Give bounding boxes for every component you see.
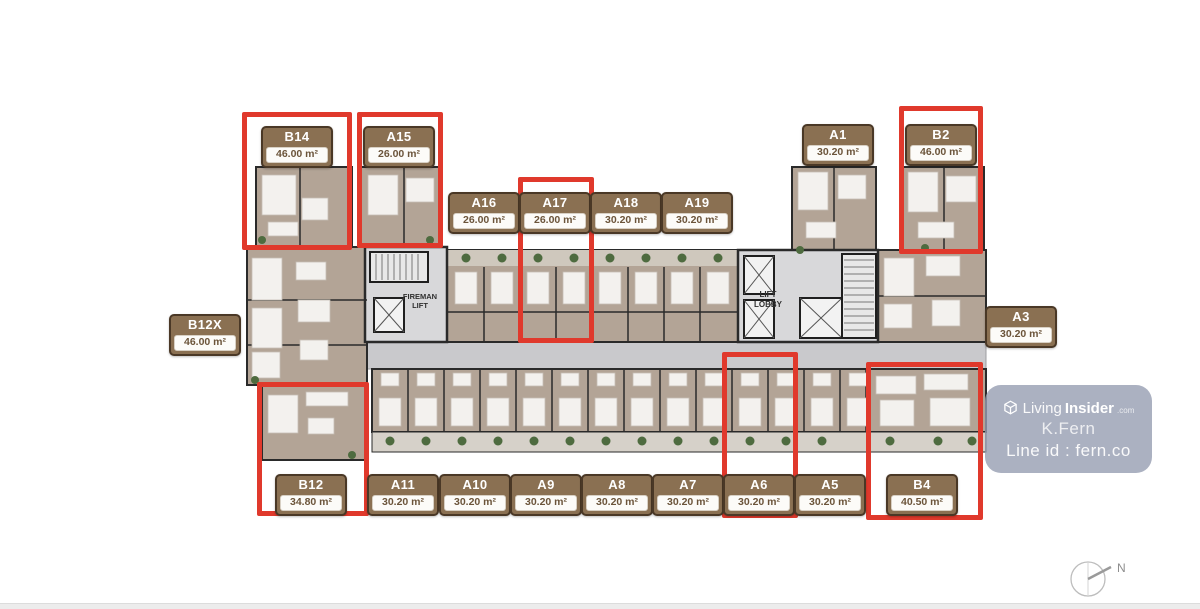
unit-badge-a19: A1930.20 m² bbox=[661, 192, 733, 234]
unit-area: 26.00 m² bbox=[453, 213, 515, 229]
compass-icon: N bbox=[1058, 550, 1138, 605]
fireman-lift-label-line1: FIREMAN bbox=[403, 292, 437, 301]
unit-area: 46.00 m² bbox=[910, 145, 972, 161]
unit-badge-a8: A830.20 m² bbox=[581, 474, 653, 516]
unit-id: A18 bbox=[595, 196, 657, 211]
unit-area: 46.00 m² bbox=[266, 147, 328, 163]
fireman-lift-label-line2: LIFT bbox=[412, 301, 428, 310]
unit-id: A1 bbox=[807, 128, 869, 143]
unit-id: A17 bbox=[524, 196, 586, 211]
watermark: LivingInsider.com K.Fern Line id : fern.… bbox=[985, 385, 1152, 473]
compass-north-label: N bbox=[1117, 561, 1126, 575]
unit-area: 40.50 m² bbox=[891, 495, 953, 511]
unit-badge-a7: A730.20 m² bbox=[652, 474, 724, 516]
watermark-brand-insider: Insider bbox=[1065, 400, 1114, 417]
watermark-brand: LivingInsider.com bbox=[1003, 398, 1135, 417]
unit-badge-a10: A1030.20 m² bbox=[439, 474, 511, 516]
unit-id: A6 bbox=[728, 478, 790, 493]
unit-badge-a3: A330.20 m² bbox=[985, 306, 1057, 348]
unit-id: A10 bbox=[444, 478, 506, 493]
unit-id: B2 bbox=[910, 128, 972, 143]
unit-badge-a5: A530.20 m² bbox=[794, 474, 866, 516]
unit-id: A9 bbox=[515, 478, 577, 493]
unit-area: 30.20 m² bbox=[728, 495, 790, 511]
floor-plan-image: FIREMAN LIFT LIFT LOBBY B1446.00 m²A1526… bbox=[0, 0, 1200, 609]
unit-area: 34.80 m² bbox=[280, 495, 342, 511]
watermark-line-id: Line id : fern.co bbox=[1006, 441, 1131, 461]
unit-id: A15 bbox=[368, 130, 430, 145]
unit-id: A3 bbox=[990, 310, 1052, 325]
unit-badge-b2: B246.00 m² bbox=[905, 124, 977, 166]
unit-id: A19 bbox=[666, 196, 728, 211]
unit-area: 30.20 m² bbox=[372, 495, 434, 511]
unit-badge-a18: A1830.20 m² bbox=[590, 192, 662, 234]
unit-badge-a11: A1130.20 m² bbox=[367, 474, 439, 516]
unit-area: 30.20 m² bbox=[666, 213, 728, 229]
watermark-brand-tld: .com bbox=[1117, 406, 1134, 415]
unit-badge-b12: B1234.80 m² bbox=[275, 474, 347, 516]
unit-id: A7 bbox=[657, 478, 719, 493]
unit-badge-b12x: B12X46.00 m² bbox=[169, 314, 241, 356]
unit-id: A8 bbox=[586, 478, 648, 493]
unit-badge-a9: A930.20 m² bbox=[510, 474, 582, 516]
unit-area: 46.00 m² bbox=[174, 335, 236, 351]
lift-lobby-label-line2: LOBBY bbox=[754, 300, 783, 309]
unit-area: 30.20 m² bbox=[586, 495, 648, 511]
unit-area: 30.20 m² bbox=[990, 327, 1052, 343]
unit-area: 30.20 m² bbox=[807, 145, 869, 161]
unit-badge-a15: A1526.00 m² bbox=[363, 126, 435, 168]
page-edge-strip bbox=[0, 603, 1200, 609]
lift-lobby-label-line1: LIFT bbox=[760, 290, 777, 299]
unit-area: 26.00 m² bbox=[368, 147, 430, 163]
unit-id: A5 bbox=[799, 478, 861, 493]
unit-area: 30.20 m² bbox=[444, 495, 506, 511]
unit-area: 30.20 m² bbox=[799, 495, 861, 511]
unit-area: 30.20 m² bbox=[657, 495, 719, 511]
unit-area: 30.20 m² bbox=[595, 213, 657, 229]
livinginsider-logo-icon bbox=[1003, 400, 1018, 415]
watermark-agent-name: K.Fern bbox=[1041, 419, 1095, 439]
floor-plan-drawing: FIREMAN LIFT LIFT LOBBY bbox=[0, 0, 1200, 609]
unit-id: B14 bbox=[266, 130, 328, 145]
watermark-brand-living: Living bbox=[1023, 400, 1062, 417]
unit-badge-a6: A630.20 m² bbox=[723, 474, 795, 516]
unit-id: A16 bbox=[453, 196, 515, 211]
unit-badge-a1: A130.20 m² bbox=[802, 124, 874, 166]
unit-id: B12X bbox=[174, 318, 236, 333]
unit-id: B4 bbox=[891, 478, 953, 493]
unit-badge-b4: B440.50 m² bbox=[886, 474, 958, 516]
unit-badge-a17: A1726.00 m² bbox=[519, 192, 591, 234]
unit-badge-a16: A1626.00 m² bbox=[448, 192, 520, 234]
unit-id: B12 bbox=[280, 478, 342, 493]
unit-id: A11 bbox=[372, 478, 434, 493]
unit-badge-b14: B1446.00 m² bbox=[261, 126, 333, 168]
unit-area: 26.00 m² bbox=[524, 213, 586, 229]
unit-area: 30.20 m² bbox=[515, 495, 577, 511]
